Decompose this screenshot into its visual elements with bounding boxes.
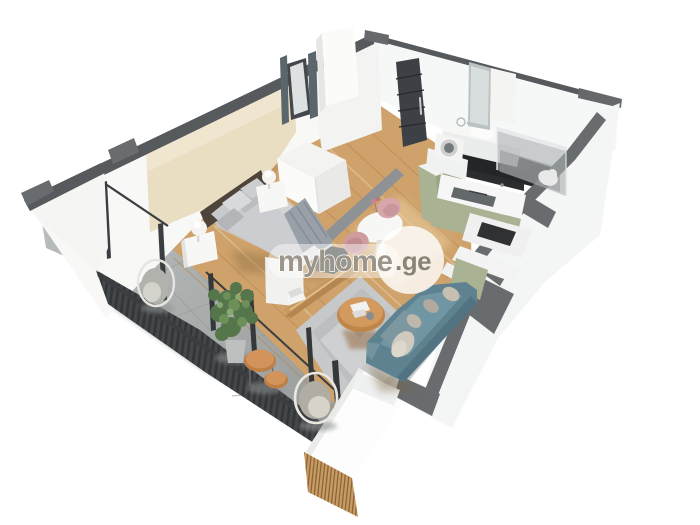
svg-text:myhome: myhome — [278, 245, 392, 278]
svg-text:.ge: .ge — [395, 246, 431, 276]
